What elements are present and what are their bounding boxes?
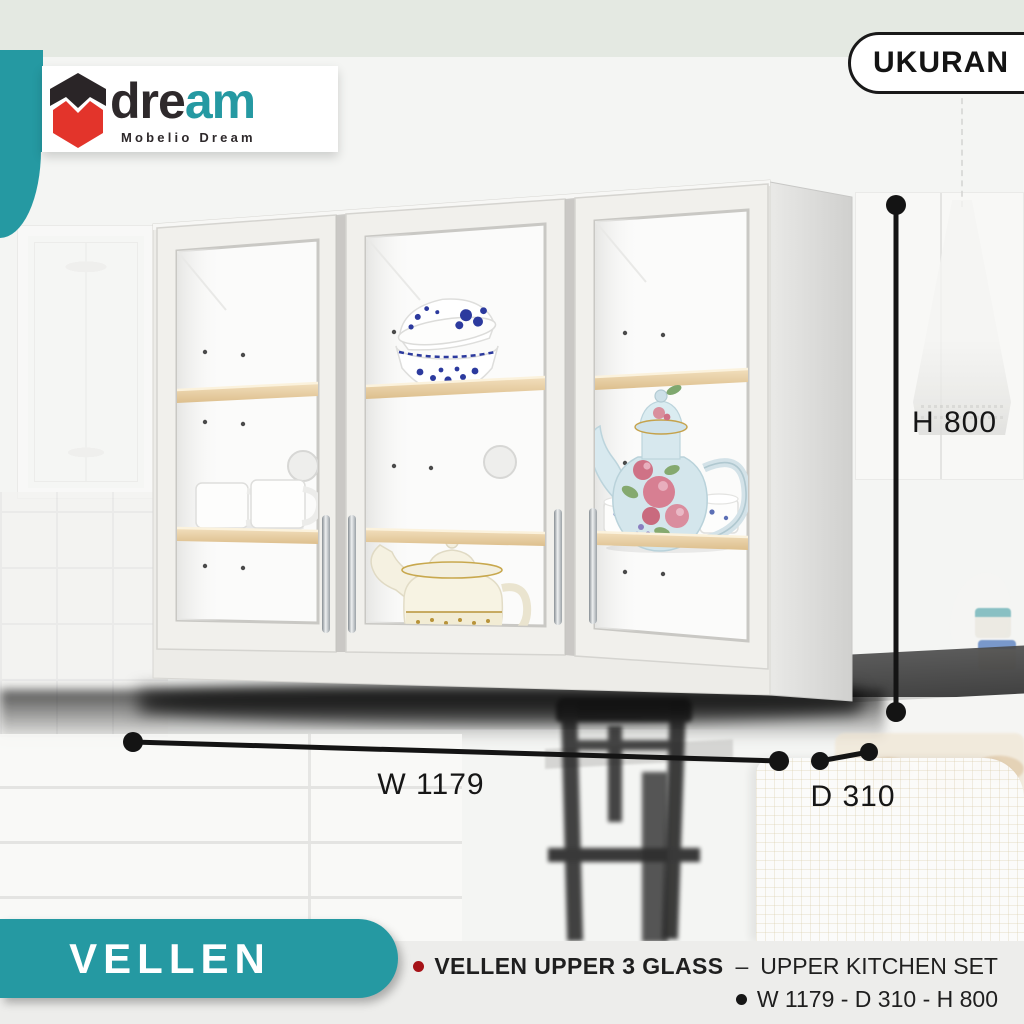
cabinet-side-panel [770,182,852,701]
brand-wordmark-dark: dre [110,73,185,129]
series-banner: VELLEN [0,919,398,998]
door-handle [554,509,562,625]
product-divider: – [735,953,748,980]
cabinet-door-left [157,215,336,652]
door-gap [565,198,575,656]
teal-accent-bar [0,50,43,152]
door-handle [348,515,356,633]
brand-tagline: Mobelio Dream [121,130,256,145]
product-poster: H 800 W 1179 D 310 dream Mobelio Dream [0,0,1024,1024]
dim-label-width: W 1179 [377,768,484,801]
product-name: VELLEN UPPER 3 GLASS [434,953,723,980]
size-badge-label: UKURAN [873,46,1009,80]
brand-wordmark-teal: am [185,73,255,129]
dim-line-height [886,195,906,722]
product-size-line: W 1179 - D 310 - H 800 [736,986,998,1013]
door-handle [589,508,597,624]
product-title-line: VELLEN UPPER 3 GLASS – UPPER KITCHEN SET [413,953,998,980]
cabinet-door-right [575,184,768,669]
strainer-ball [484,446,516,478]
red-bullet-icon [413,961,424,972]
dim-line-depth [811,743,878,770]
strainer-ball [288,451,318,481]
series-name: VELLEN [69,935,271,983]
black-bullet-icon [736,994,747,1005]
product-size-summary: W 1179 - D 310 - H 800 [757,986,998,1013]
product-category: UPPER KITCHEN SET [760,953,998,980]
white-mugs [196,480,319,533]
brand-wordmark: dream [110,74,255,129]
dim-line-width [123,732,789,771]
dim-label-depth: D 310 [810,780,895,813]
cabinet-illustration: H 800 W 1179 D 310 [0,0,1024,1024]
brand-cube-icon [47,72,109,150]
door-gap [336,214,346,652]
dim-label-height: H 800 [912,406,997,439]
cabinet-door-middle [346,199,565,662]
logo-card: dream Mobelio Dream [42,66,338,152]
size-badge: UKURAN [848,32,1024,94]
door-handle [322,515,330,633]
